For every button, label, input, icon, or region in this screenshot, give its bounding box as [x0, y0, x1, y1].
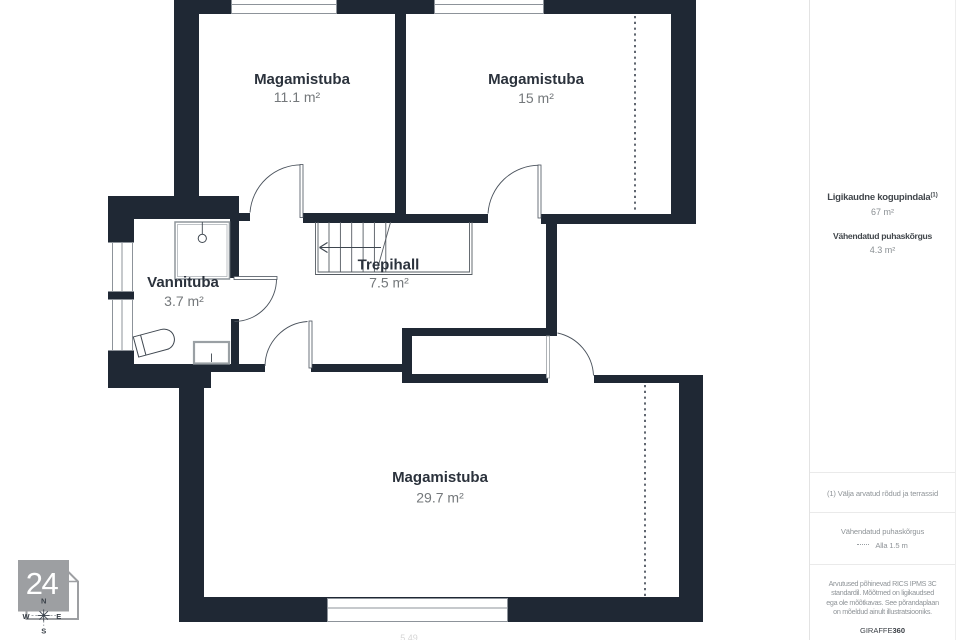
- svg-text:Trepihall: Trepihall: [358, 257, 420, 274]
- svg-text:3.7 m²: 3.7 m²: [164, 293, 204, 309]
- svg-text:15 m²: 15 m²: [518, 90, 554, 106]
- svg-text:5,49: 5,49: [400, 633, 418, 640]
- svg-text:N: N: [41, 596, 46, 605]
- svg-text:Magamistuba: Magamistuba: [392, 469, 489, 486]
- svg-text:Magamistuba: Magamistuba: [254, 71, 351, 88]
- svg-text:11.1 m²: 11.1 m²: [274, 89, 321, 105]
- svg-text:W: W: [22, 612, 30, 621]
- svg-text:Magamistuba: Magamistuba: [488, 71, 585, 88]
- svg-text:Vannituba: Vannituba: [147, 274, 219, 291]
- svg-text:29.7 m²: 29.7 m²: [416, 490, 464, 506]
- svg-text:7.5 m²: 7.5 m²: [369, 275, 409, 291]
- svg-text:S: S: [41, 627, 46, 636]
- svg-text:E: E: [56, 612, 61, 621]
